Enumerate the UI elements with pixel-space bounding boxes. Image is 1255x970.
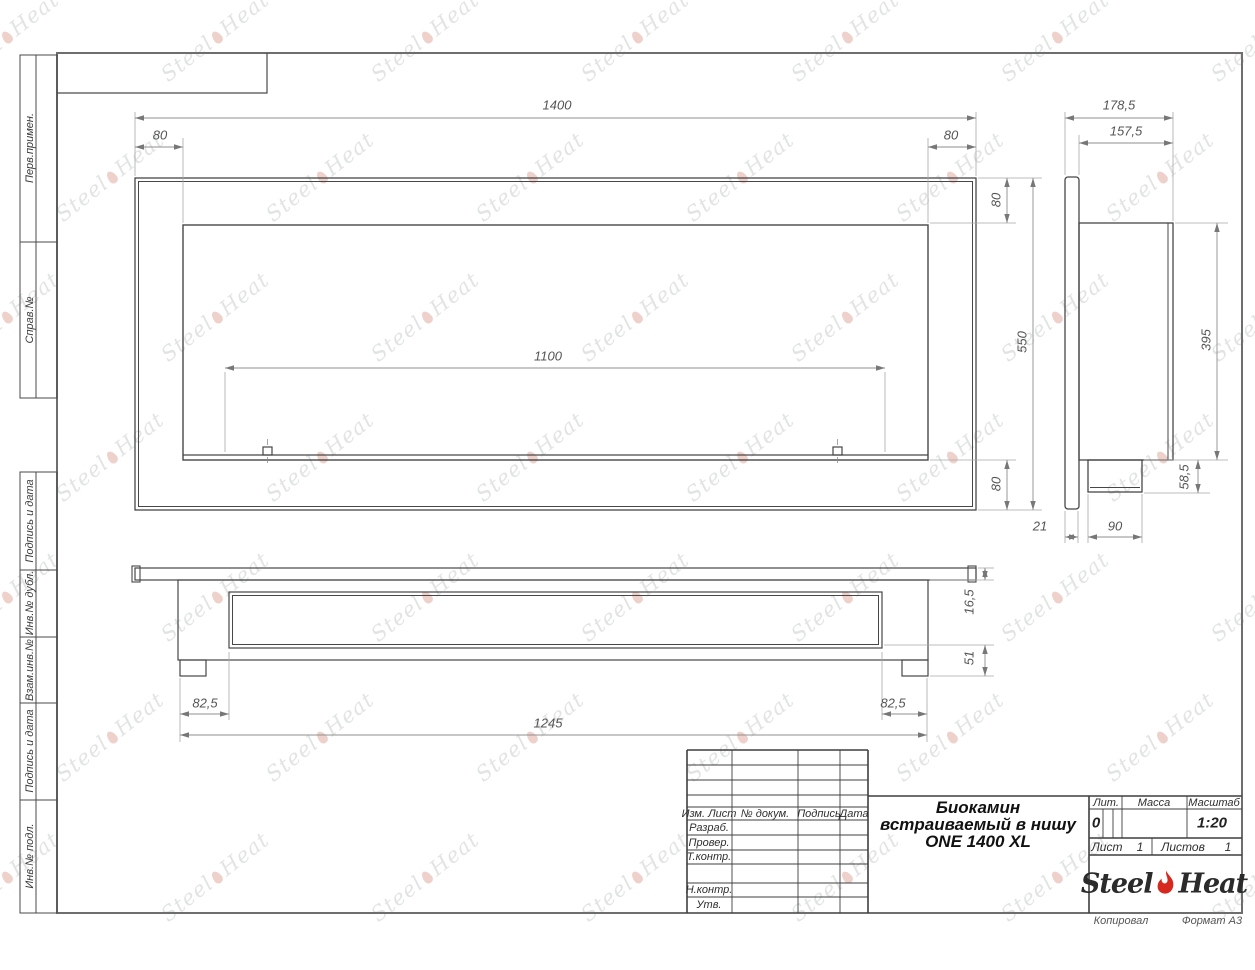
dim-bottom-margin: 80 [989, 477, 1004, 491]
tb-lit-value: 0 [1092, 815, 1100, 832]
dim-opening-width: 1100 [534, 349, 562, 364]
margin-label-podpis-data-2: Подпись и дата [24, 709, 36, 792]
dim-left-margin: 80 [153, 128, 167, 143]
dim-right-margin: 80 [944, 128, 958, 143]
brand-logo: Steel Heat [1081, 869, 1247, 900]
dim-bottom-box-height: 58,5 [1177, 464, 1192, 489]
product-title-line3: ONE 1400 XL [925, 832, 1031, 852]
side-view [1065, 177, 1173, 509]
tb-lit-label: Лит. [1093, 797, 1119, 809]
tb-sheets-value: 1 [1225, 840, 1232, 854]
top-left-stamp-box [57, 53, 267, 93]
dim-total-depth: 178,5 [1103, 98, 1136, 113]
tb-sheet-value: 1 [1137, 840, 1144, 854]
tb-sheet-label: Лист [1092, 840, 1123, 854]
dim-right-offset: 82,5 [880, 696, 905, 711]
drawing-sheet: SteelHeatSteelHeatSteelHeatSteelHeatStee… [0, 0, 1255, 970]
dim-base-height: 51 [962, 651, 977, 665]
dim-total-width: 1400 [543, 98, 572, 113]
brand-heat-text: Heat [1178, 869, 1247, 900]
margin-label-vzam-inv: Взам.инв.№ [24, 639, 36, 701]
margin-label-perv-primen: Перв.примен. [24, 113, 36, 183]
tb-row-nkontr: Н.контр. [686, 884, 733, 896]
margin-label-sprav-no: Справ.№ [24, 297, 36, 344]
dimension-lines [135, 118, 1217, 735]
dim-base-length: 1245 [534, 716, 563, 731]
tb-header-izm-list: Изм. Лист [682, 808, 737, 820]
format-note: Формат А3 [1182, 915, 1242, 927]
tb-massa-label: Масса [1138, 797, 1171, 809]
tb-scale-value: 1:20 [1197, 815, 1227, 832]
tb-header-doc: № докум. [741, 808, 789, 820]
dim-total-height: 550 [1015, 331, 1030, 353]
brand-steel-text: Steel [1081, 869, 1153, 900]
margin-label-podpis-data-1: Подпись и дата [24, 479, 36, 562]
dim-flange-offset: 21 [1033, 519, 1047, 534]
dim-left-offset: 82,5 [192, 696, 217, 711]
tb-row-tkontr: Т.контр. [687, 851, 731, 863]
dim-body-height: 395 [1199, 329, 1214, 351]
tb-row-utv: Утв. [697, 899, 722, 911]
margin-label-inv-podl: Инв.№ подл. [24, 823, 36, 888]
flame-icon [1154, 871, 1176, 898]
dim-body-depth: 157,5 [1110, 124, 1143, 139]
tb-header-sign: Подпись [797, 808, 841, 820]
tb-sheets-label: Листов [1161, 840, 1205, 854]
tb-scale-label: Масштаб [1188, 797, 1239, 809]
margin-label-inv-dubl: Инв.№ дубл. [24, 571, 36, 636]
dim-bottom-box-width: 90 [1108, 519, 1122, 534]
tb-header-date: Дата [839, 808, 868, 820]
dim-top-margin: 80 [989, 193, 1004, 207]
plan-view [132, 566, 976, 676]
tb-row-prover: Провер. [689, 837, 730, 849]
dim-flange-thickness: 16,5 [962, 589, 977, 614]
tb-row-razrab: Разраб. [689, 822, 729, 834]
kopiroval-note: Копировал [1094, 915, 1149, 927]
front-view [135, 178, 976, 510]
